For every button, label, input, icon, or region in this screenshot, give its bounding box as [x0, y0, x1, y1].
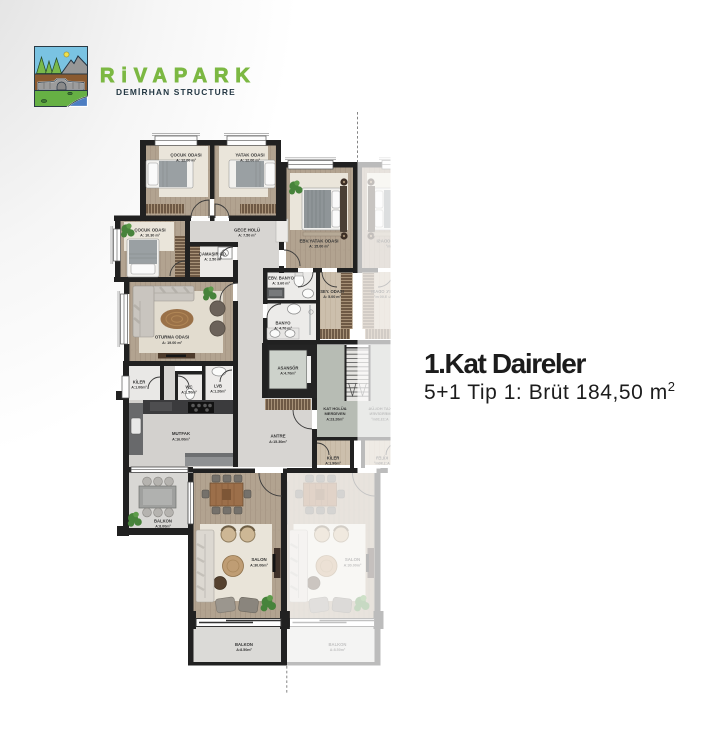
svg-text:A:8.50m²: A:8.50m² [236, 648, 252, 652]
svg-text:A: 12.00 m²: A: 12.00 m² [240, 159, 260, 163]
svg-text:A:15.30m²: A:15.30m² [269, 440, 287, 444]
svg-text:KİLER: KİLER [327, 456, 340, 461]
svg-text:BANYO: BANYO [275, 321, 291, 326]
svg-text:WC: WC [186, 385, 193, 390]
svg-text:ANTRE: ANTRE [270, 434, 285, 439]
svg-text:YATAK ODASI: YATAK ODASI [235, 153, 264, 158]
svg-text:BALKON: BALKON [154, 519, 172, 524]
svg-text:ASANSÖR: ASANSÖR [278, 366, 299, 371]
svg-text:LVB: LVB [214, 384, 222, 389]
svg-text:A: 4.70 m²: A: 4.70 m² [274, 327, 292, 331]
svg-text:A:8.00m²: A:8.00m² [155, 525, 171, 529]
svg-text:A:30.00m²: A:30.00m² [250, 564, 268, 568]
svg-text:A: 15.00 m²: A: 15.00 m² [309, 245, 329, 249]
svg-text:A:1.20m²: A:1.20m² [210, 390, 226, 394]
svg-text:ÇOCUK ODASI: ÇOCUK ODASI [170, 153, 201, 158]
svg-text:A: 3.60 m²: A: 3.60 m² [272, 282, 290, 286]
svg-text:BALKON: BALKON [235, 642, 253, 647]
svg-text:A: 10.30 m²: A: 10.30 m² [140, 234, 160, 238]
svg-text:A:4.70m²: A:4.70m² [280, 372, 296, 376]
svg-text:A: 12.00 m²: A: 12.00 m² [176, 159, 196, 163]
svg-text:ÇAMAŞIR OD.: ÇAMAŞIR OD. [199, 252, 227, 257]
svg-text:A:1.50m²: A:1.50m² [181, 391, 197, 395]
svg-text:ÇOCUK ODASI: ÇOCUK ODASI [134, 228, 165, 233]
svg-text:A: 19.00 m²: A: 19.00 m² [162, 341, 182, 345]
svg-text:A: 2.50 m²: A: 2.50 m² [204, 258, 222, 262]
svg-text:GECE HOLÜ: GECE HOLÜ [234, 228, 260, 233]
svg-text:A:16.00m²: A:16.00m² [172, 438, 190, 442]
svg-text:A: 5.00 m²: A: 5.00 m² [323, 295, 341, 299]
svg-text:MUTFAK: MUTFAK [172, 431, 191, 436]
svg-text:MERDİVEN: MERDİVEN [324, 411, 345, 416]
svg-text:A:23.20m²: A:23.20m² [326, 418, 344, 422]
svg-text:SEY. ODASI: SEY. ODASI [320, 289, 344, 294]
svg-text:EBV. BANYO: EBV. BANYO [268, 276, 294, 281]
svg-text:A: 7.50 m²: A: 7.50 m² [238, 234, 256, 238]
svg-text:A:1.90m²: A:1.90m² [325, 462, 341, 466]
svg-text:A:1.00m²: A:1.00m² [131, 386, 147, 390]
svg-text:KİLER: KİLER [133, 380, 146, 385]
svg-text:OTURMA ODASI: OTURMA ODASI [155, 335, 189, 340]
svg-text:SALON: SALON [251, 557, 266, 562]
svg-text:EBV.YATAK ODASI: EBV.YATAK ODASI [299, 239, 338, 244]
